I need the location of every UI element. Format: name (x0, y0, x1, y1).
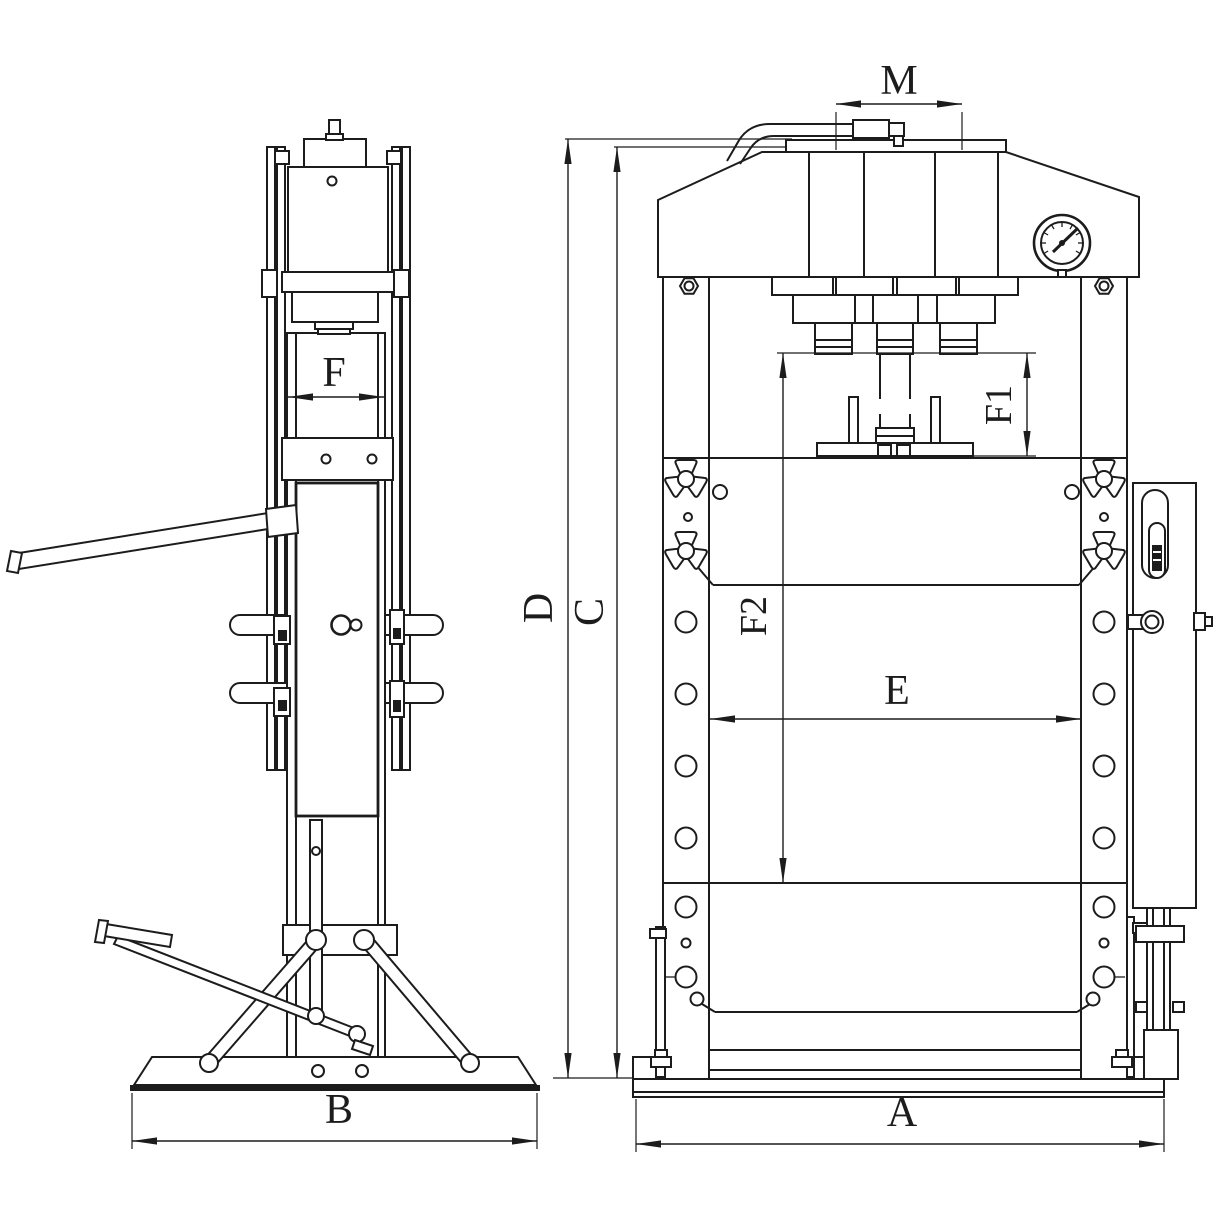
hydraulic-press-technical-drawing: F B D C (0, 0, 1214, 1214)
side-view: F B (7, 120, 540, 1149)
drawing-canvas: F B D C (0, 0, 1214, 1214)
oil-tank-side (296, 483, 378, 816)
dim-label-m: M (880, 58, 917, 104)
dim-label-e: E (884, 668, 910, 714)
lower-tie-bars (709, 1050, 1081, 1070)
dim-label-f: F (322, 350, 345, 396)
mount-plate-side (282, 438, 393, 480)
dim-label-f2: F2 (733, 596, 775, 636)
hand-pump-assembly (1128, 483, 1212, 1079)
front-view: M F1 F2 E A (633, 58, 1212, 1152)
hand-pump-lever (7, 505, 298, 573)
pump-side-knob (1194, 613, 1205, 630)
upper-beam-front (663, 458, 1127, 585)
press-plate-assembly (817, 397, 973, 456)
dim-f2: F2 (733, 353, 783, 883)
dim-label-c: C (567, 598, 613, 626)
work-table-front (663, 883, 1127, 1012)
frame-column-left-front (663, 277, 709, 1079)
frame-column-right-front (1081, 277, 1127, 1079)
dim-b: B (132, 1087, 537, 1149)
ram-rod (876, 354, 914, 444)
dim-label-b: B (325, 1087, 353, 1133)
dim-label-d: D (516, 593, 562, 623)
dim-label-a: A (887, 1090, 918, 1136)
column-brackets (650, 917, 1147, 1077)
dim-e: E (710, 668, 1081, 719)
dim-label-f1: F1 (978, 385, 1020, 425)
dim-a: A (636, 1090, 1164, 1152)
